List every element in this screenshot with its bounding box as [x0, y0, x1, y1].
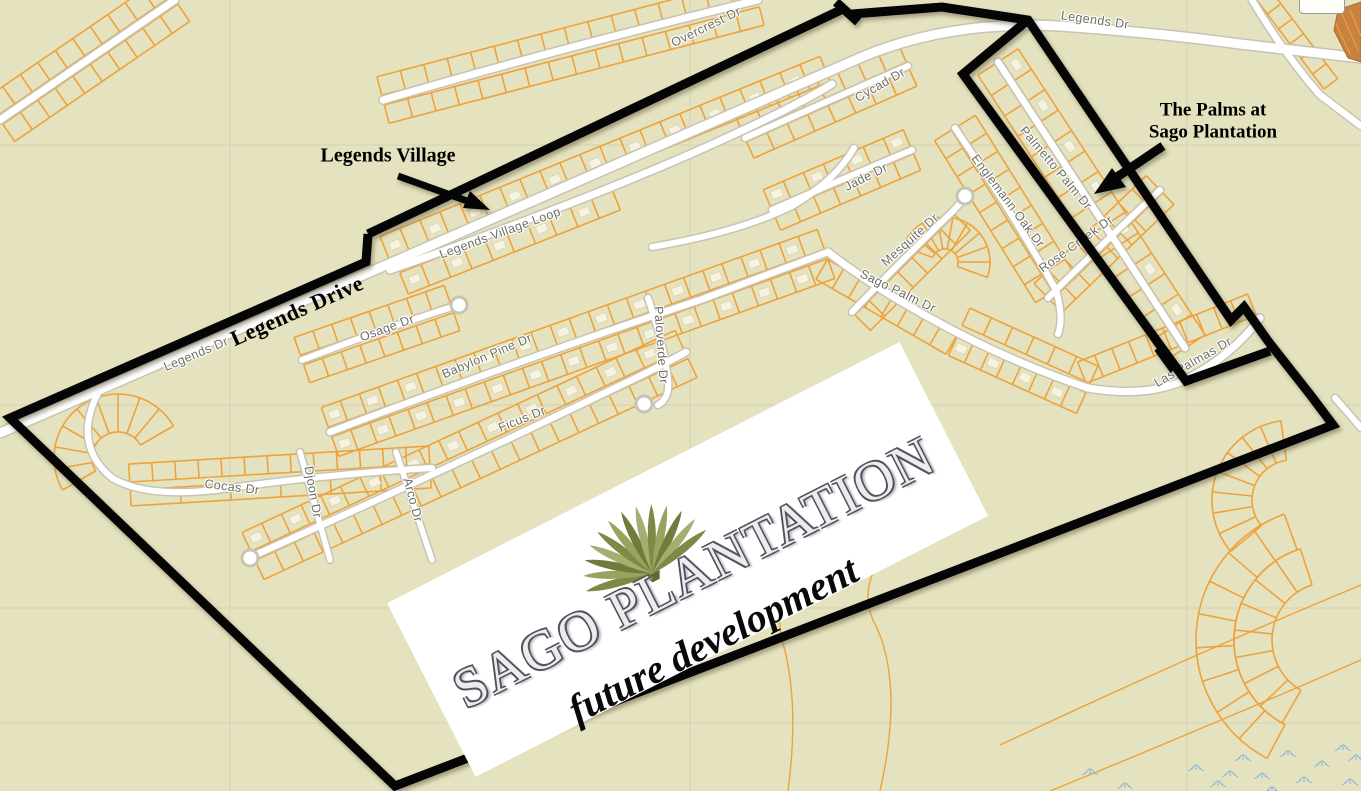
legends-village-label: Legends Village — [320, 145, 455, 168]
the-palms-arrow — [1094, 146, 1163, 194]
the-palms-label: The Palms at Sago Plantation — [1149, 100, 1277, 145]
map-canvas: Legends DrLegends DrLegends Village Loop… — [0, 0, 1361, 791]
the-palms-label-line1: The Palms at — [1149, 100, 1277, 122]
the-palms-label-line2: Sago Plantation — [1149, 122, 1277, 144]
map-balloon — [1299, 0, 1345, 14]
